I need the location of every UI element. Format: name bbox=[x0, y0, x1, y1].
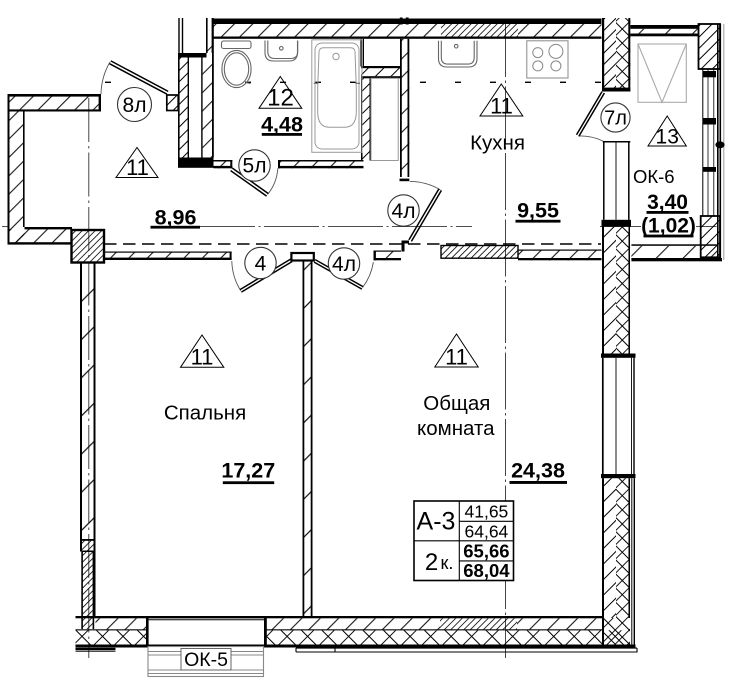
svg-text:13: 13 bbox=[656, 126, 679, 149]
svg-text:5л: 5л bbox=[243, 155, 267, 178]
svg-text:2: 2 bbox=[425, 549, 438, 576]
svg-text:9,55: 9,55 bbox=[517, 199, 559, 223]
svg-text:4л: 4л bbox=[332, 253, 356, 276]
svg-text:11: 11 bbox=[445, 344, 468, 369]
svg-text:Кухня: Кухня bbox=[470, 132, 525, 155]
svg-text:17,27: 17,27 bbox=[221, 459, 275, 483]
svg-text:65,66: 65,66 bbox=[463, 540, 509, 561]
svg-text:к.: к. bbox=[441, 553, 454, 573]
svg-text:41,65: 41,65 bbox=[465, 501, 509, 521]
svg-text:Спальня: Спальня bbox=[164, 402, 246, 425]
svg-text:ОК-5: ОК-5 bbox=[184, 649, 228, 671]
svg-text:4,48: 4,48 bbox=[261, 113, 303, 137]
svg-text:24,38: 24,38 bbox=[511, 459, 565, 483]
svg-text:комната: комната bbox=[417, 417, 495, 440]
svg-text:А-3: А-3 bbox=[417, 508, 456, 536]
svg-text:12: 12 bbox=[267, 84, 294, 111]
svg-text:11: 11 bbox=[126, 155, 149, 180]
svg-text:7л: 7л bbox=[604, 108, 627, 130]
svg-text:4л: 4л bbox=[392, 200, 416, 223]
svg-text:68,04: 68,04 bbox=[463, 560, 510, 581]
svg-text:(1,02): (1,02) bbox=[641, 215, 696, 238]
svg-text:ОК-6: ОК-6 bbox=[633, 166, 675, 187]
svg-text:11: 11 bbox=[191, 345, 214, 370]
svg-text:8л: 8л bbox=[123, 94, 147, 117]
svg-text:Общая: Общая bbox=[423, 392, 490, 415]
svg-text:4: 4 bbox=[255, 253, 267, 276]
svg-text:64,64: 64,64 bbox=[465, 521, 509, 541]
svg-text:3,40: 3,40 bbox=[647, 191, 688, 214]
svg-text:11: 11 bbox=[490, 93, 513, 118]
